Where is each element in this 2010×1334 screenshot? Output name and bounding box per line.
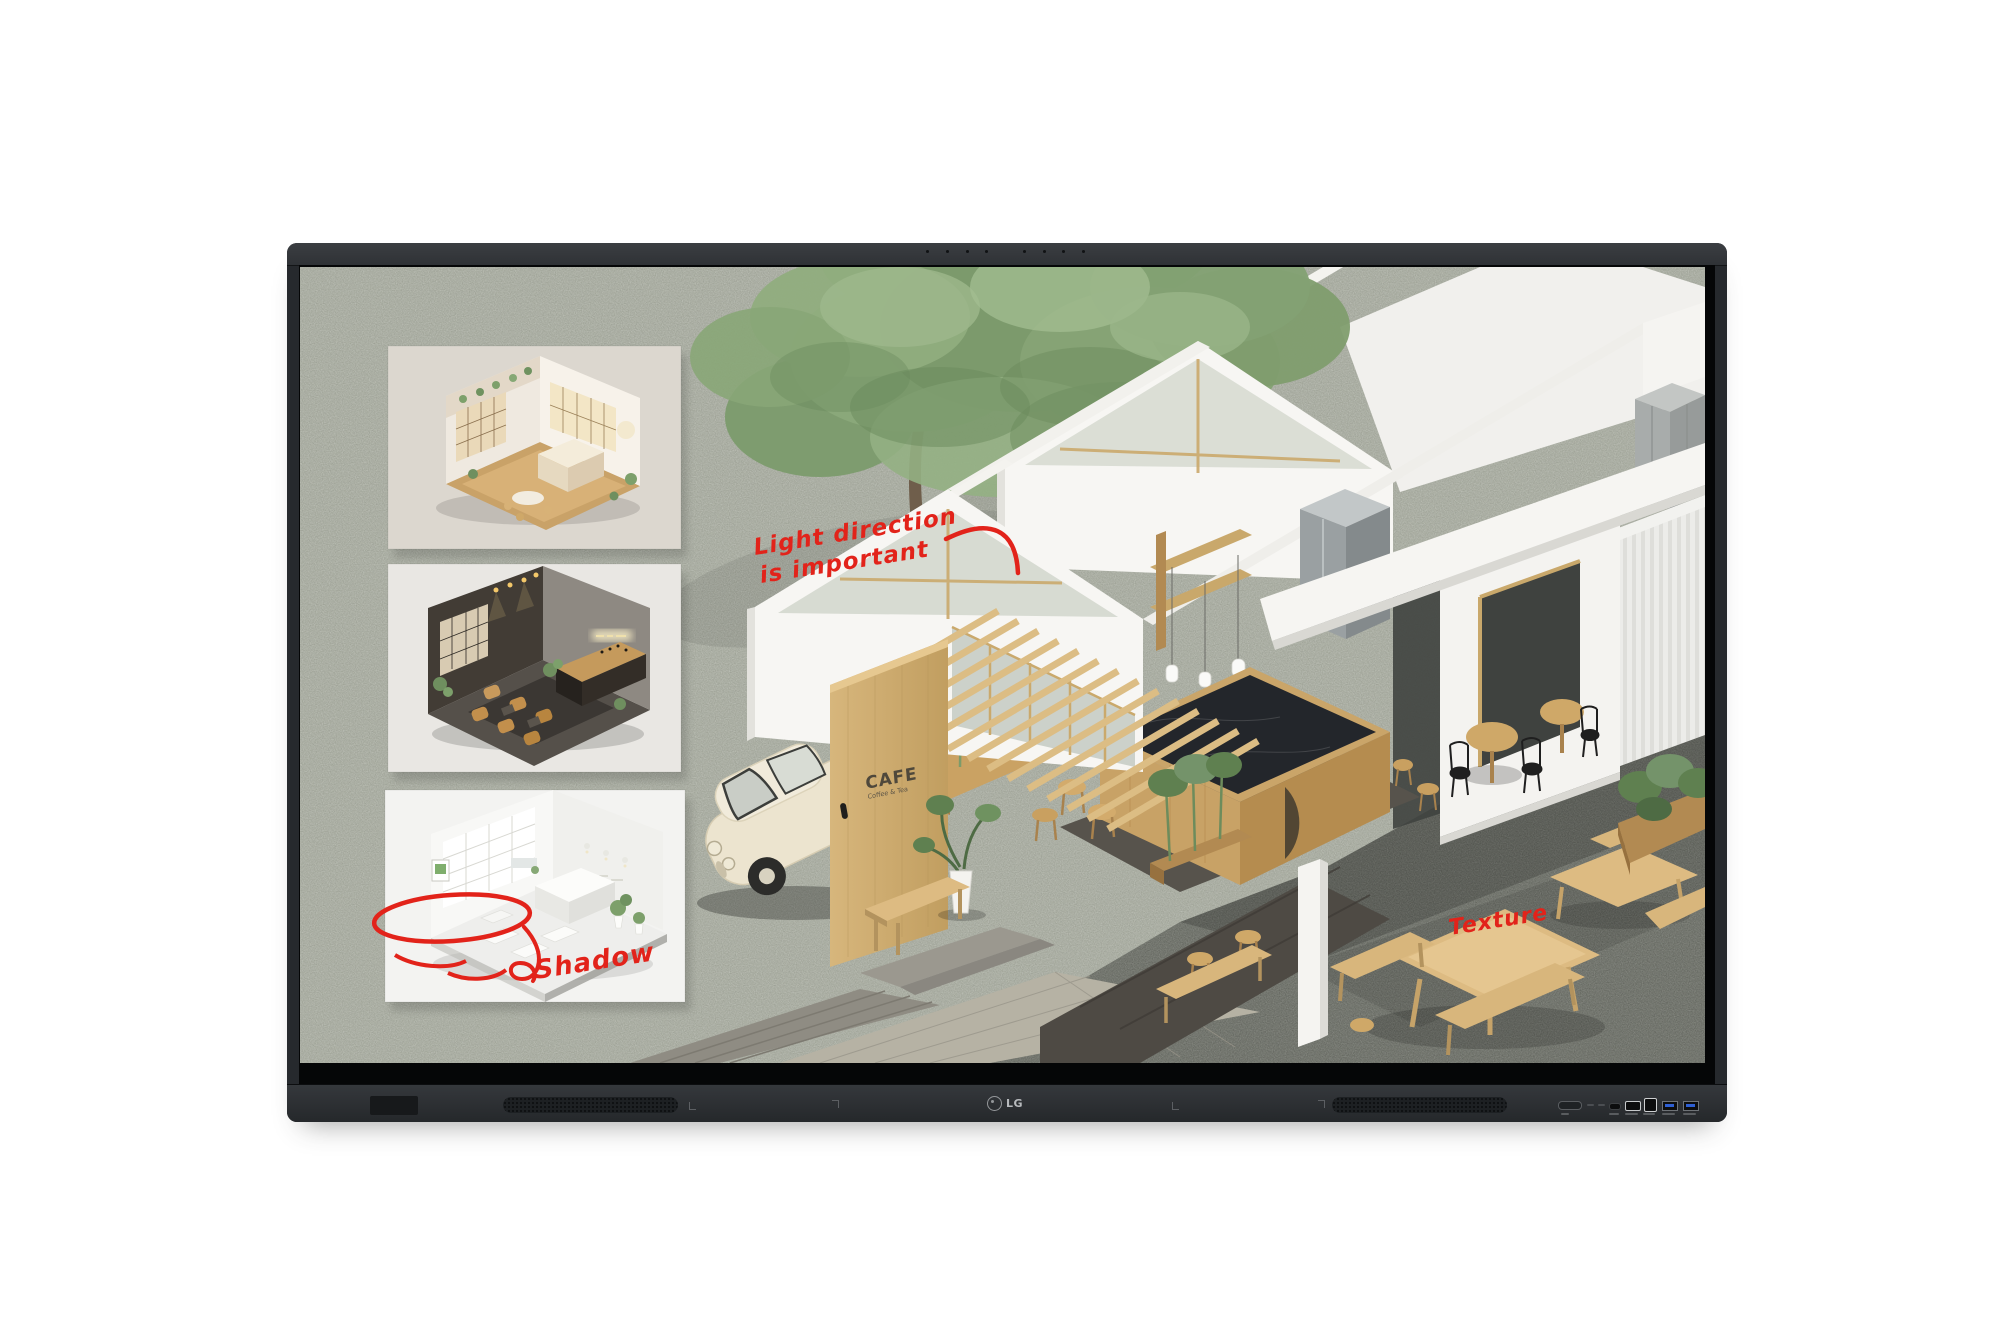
port-label-mark xyxy=(1662,1113,1675,1115)
thumbnail-cafe-warm[interactable] xyxy=(388,346,681,549)
green-picture-frame xyxy=(432,860,449,881)
mic-sensor-dot xyxy=(966,250,969,253)
mic-sensor-dot xyxy=(946,250,949,253)
usb-a-port xyxy=(1683,1101,1699,1111)
lg-interactive-display: CAFE Coffee & Tea xyxy=(287,243,1727,1122)
tray-alignment-mark xyxy=(689,1102,696,1110)
display-panel: CAFE Coffee & Tea xyxy=(299,265,1715,1085)
port-label-mark xyxy=(1643,1113,1655,1115)
mic-sensor-dot xyxy=(926,250,929,253)
whiteboard-canvas[interactable]: CAFE Coffee & Tea xyxy=(300,267,1705,1063)
tray-alignment-mark xyxy=(832,1100,839,1108)
mic-sensor-dot xyxy=(1062,250,1065,253)
mic-sensor-dot xyxy=(985,250,988,253)
lg-symbol-icon xyxy=(987,1096,1002,1111)
port-label-mark xyxy=(1609,1113,1619,1115)
bottom-bezel: LG xyxy=(287,1084,1727,1122)
power-button[interactable] xyxy=(1558,1101,1582,1110)
port-label-mark xyxy=(1683,1113,1696,1115)
speaker-grille-right xyxy=(1332,1097,1507,1113)
mic-sensor-dot xyxy=(1023,250,1026,253)
tray-alignment-mark xyxy=(1318,1100,1325,1108)
mic-sensor-dot xyxy=(1082,250,1085,253)
tray-alignment-mark xyxy=(1172,1102,1179,1110)
thumbnail-cafe-dark[interactable] xyxy=(388,564,681,772)
lg-logo-text: LG xyxy=(1006,1097,1023,1110)
product-photo-stage: CAFE Coffee & Tea xyxy=(0,0,2010,1334)
status-led xyxy=(1587,1104,1594,1106)
top-bezel xyxy=(287,243,1727,266)
speaker-grille-left xyxy=(503,1097,678,1113)
hdmi-port xyxy=(1625,1101,1641,1111)
usb-c-port xyxy=(1609,1103,1621,1110)
port-label-mark xyxy=(1625,1113,1638,1115)
usb-a-port xyxy=(1662,1101,1678,1111)
port-label-mark xyxy=(1561,1113,1569,1115)
usb-b-touch-port xyxy=(1644,1098,1657,1112)
status-led xyxy=(1598,1104,1605,1106)
lg-logo: LG xyxy=(987,1096,1023,1111)
ir-sensor-window xyxy=(370,1096,418,1115)
mic-sensor-dot xyxy=(1043,250,1046,253)
